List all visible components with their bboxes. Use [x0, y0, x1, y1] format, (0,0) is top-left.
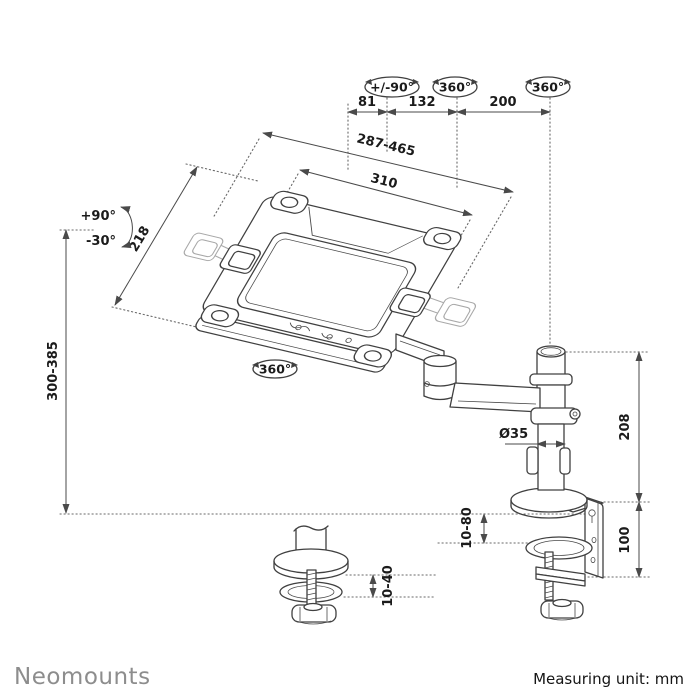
rotation-badge-arm: 360°	[432, 77, 478, 97]
dim-287-465-label: 287-465	[355, 131, 417, 159]
technical-drawing-page: 81 132 200 +/-90° 360° 360° 360°	[0, 0, 700, 700]
swivel-arm	[396, 334, 540, 412]
dim-height-range: 300-385	[46, 230, 66, 513]
rotation-badge-pole: 360°	[525, 77, 571, 97]
tilt-down-label: -30°	[86, 234, 116, 249]
rotation-badge-tilt: +/-90°	[365, 77, 419, 97]
grommet-mount	[274, 526, 348, 624]
dim-100-label: 100	[618, 526, 633, 553]
rotation-badge-tray: 360°	[252, 360, 298, 378]
arm-link	[450, 383, 540, 412]
dim-tray-plate-width: 310	[300, 170, 472, 215]
grommet-knob	[292, 604, 336, 625]
dim-tilt-angles: +90° -30°	[81, 207, 133, 249]
dim-10-40-label: 10-40	[381, 565, 396, 607]
dim-200-label: 200	[489, 95, 516, 110]
dim-81-label: 81	[358, 95, 376, 110]
rotation-tray-label: 360°	[259, 362, 291, 377]
mount-drawing: 81 132 200 +/-90° 360° 360° 360°	[0, 0, 700, 700]
dim-208-label: 208	[618, 413, 633, 440]
dim-o35-label: Ø35	[499, 427, 528, 442]
laptop-tray	[146, 178, 512, 386]
brand-logo: Neomounts	[14, 664, 151, 690]
dim-clamp-height: 100	[618, 502, 639, 577]
dim-132-label: 132	[408, 95, 435, 110]
rotation-pole-label: 360°	[532, 80, 564, 95]
rotation-arm-label: 360°	[439, 80, 471, 95]
dim-tray-depth: 218	[115, 167, 197, 305]
dim-clamp-range: 10-80	[460, 507, 484, 549]
dim-grommet-range: 10-40	[373, 565, 396, 607]
pole-ring-clamp	[531, 408, 580, 424]
measuring-unit-label: Measuring unit: mm	[533, 670, 684, 688]
clamp-knob	[541, 600, 583, 621]
dim-arm-segments: 81 132 200	[348, 95, 550, 112]
rotation-tilt-label: +/-90°	[370, 80, 414, 95]
pole-lower	[527, 424, 570, 490]
tilt-up-label: +90°	[81, 209, 116, 224]
dim-300-385-label: 300-385	[46, 341, 61, 401]
arm-hinge	[424, 356, 456, 367]
clamp-screw-assembly	[526, 537, 592, 620]
dim-pole-height: 208	[618, 352, 639, 502]
dim-10-80-label: 10-80	[460, 507, 475, 549]
